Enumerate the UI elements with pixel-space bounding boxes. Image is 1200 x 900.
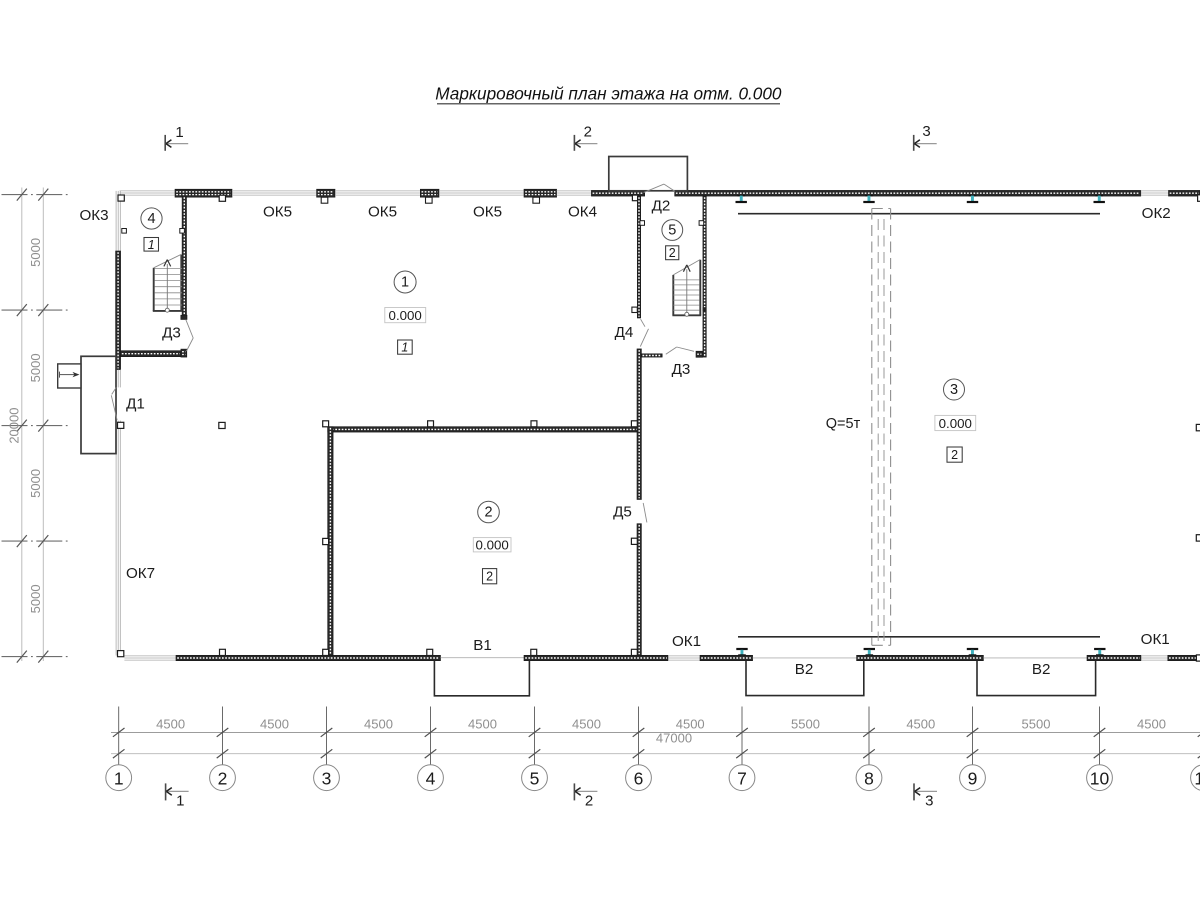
svg-text:ОК4: ОК4 xyxy=(568,203,597,220)
svg-text:ОК5: ОК5 xyxy=(368,203,397,220)
svg-text:В2: В2 xyxy=(795,661,814,678)
svg-text:ОК5: ОК5 xyxy=(263,203,292,220)
svg-text:8: 8 xyxy=(864,768,874,788)
svg-text:1: 1 xyxy=(114,768,124,788)
svg-text:ОК1: ОК1 xyxy=(672,633,701,650)
svg-text:0.000: 0.000 xyxy=(389,308,422,323)
svg-text:5000: 5000 xyxy=(28,469,43,498)
svg-text:Маркировочный план этажа на от: Маркировочный план этажа на отм. 0.000 xyxy=(435,84,782,104)
svg-text:1: 1 xyxy=(176,792,184,809)
svg-text:5000: 5000 xyxy=(28,238,43,267)
svg-text:4500: 4500 xyxy=(260,717,289,732)
svg-text:0.000: 0.000 xyxy=(476,538,509,553)
svg-text:4500: 4500 xyxy=(906,717,935,732)
svg-text:3: 3 xyxy=(322,768,332,788)
svg-text:10: 10 xyxy=(1090,768,1110,788)
svg-text:5: 5 xyxy=(668,223,676,239)
svg-text:2: 2 xyxy=(218,768,228,788)
svg-text:ОК5: ОК5 xyxy=(473,203,502,220)
svg-text:4500: 4500 xyxy=(468,717,497,732)
svg-text:Д5: Д5 xyxy=(613,503,632,520)
svg-text:Д2: Д2 xyxy=(652,198,671,215)
svg-text:ОК2: ОК2 xyxy=(1142,205,1171,222)
svg-text:Д3: Д3 xyxy=(162,324,181,341)
svg-text:В1: В1 xyxy=(473,637,492,654)
svg-text:6: 6 xyxy=(634,768,644,788)
svg-text:ОК3: ОК3 xyxy=(79,207,108,224)
svg-text:2: 2 xyxy=(486,570,493,584)
svg-text:2: 2 xyxy=(585,792,593,809)
svg-text:Q=5т: Q=5т xyxy=(826,416,861,432)
svg-text:Д1: Д1 xyxy=(126,396,145,413)
svg-text:4: 4 xyxy=(147,211,155,227)
svg-text:ОК7: ОК7 xyxy=(126,565,155,582)
svg-text:4500: 4500 xyxy=(156,717,185,732)
svg-text:2: 2 xyxy=(669,246,676,260)
svg-text:1: 1 xyxy=(175,124,183,141)
svg-text:1: 1 xyxy=(401,341,408,355)
svg-text:1: 1 xyxy=(148,238,155,252)
svg-text:2: 2 xyxy=(484,505,492,521)
svg-text:7: 7 xyxy=(737,768,747,788)
svg-text:2: 2 xyxy=(951,448,958,462)
svg-text:5000: 5000 xyxy=(28,353,43,382)
svg-text:3: 3 xyxy=(922,123,930,140)
svg-text:Д3: Д3 xyxy=(672,361,691,378)
svg-text:5500: 5500 xyxy=(1022,717,1051,732)
svg-text:5500: 5500 xyxy=(791,717,820,732)
svg-text:2: 2 xyxy=(584,124,592,141)
svg-text:4: 4 xyxy=(426,768,436,788)
svg-text:4500: 4500 xyxy=(364,717,393,732)
svg-text:В2: В2 xyxy=(1032,661,1051,678)
svg-text:5: 5 xyxy=(530,768,540,788)
svg-text:ОК1: ОК1 xyxy=(1141,631,1170,648)
svg-text:4500: 4500 xyxy=(572,717,601,732)
svg-text:3: 3 xyxy=(925,792,933,809)
svg-text:5000: 5000 xyxy=(28,584,43,613)
svg-text:0.000: 0.000 xyxy=(939,416,972,431)
svg-text:1: 1 xyxy=(401,275,409,291)
svg-text:Д4: Д4 xyxy=(615,324,634,341)
svg-text:47000: 47000 xyxy=(656,730,692,745)
svg-text:4500: 4500 xyxy=(1137,717,1166,732)
svg-text:11: 11 xyxy=(1194,768,1200,788)
svg-text:20000: 20000 xyxy=(7,408,22,444)
svg-text:9: 9 xyxy=(968,768,978,788)
svg-text:3: 3 xyxy=(950,382,958,398)
